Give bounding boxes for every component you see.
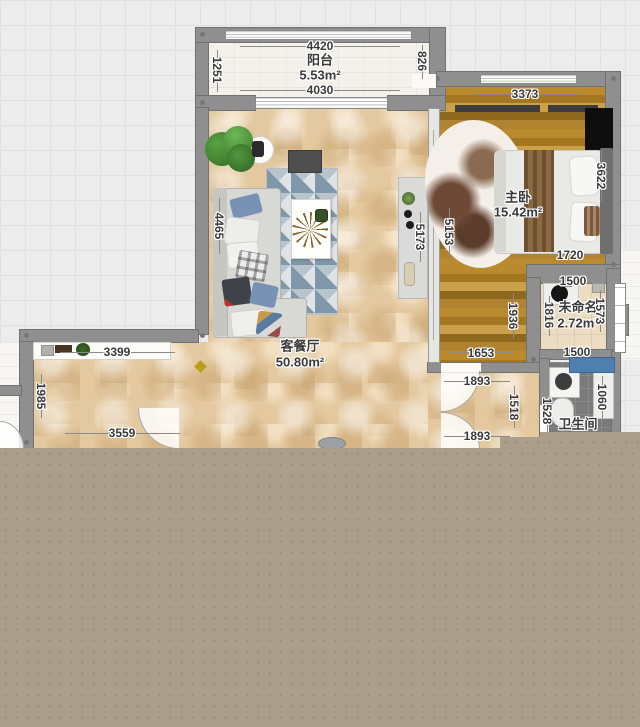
curtain[interactable] xyxy=(455,105,540,112)
tv-panel[interactable] xyxy=(585,108,613,152)
dim-hall-bottom: 1893 xyxy=(464,430,491,442)
wall-left-stub[interactable] xyxy=(0,386,21,395)
balcony-right-opening xyxy=(412,74,436,88)
dim-balcony-bottom: 4030 xyxy=(307,84,334,96)
dim-unnamed-bottom: 1500 xyxy=(564,346,591,358)
bed-cushion xyxy=(584,206,600,236)
counter-appliance xyxy=(41,345,54,356)
dim-balcony-right: 826 xyxy=(416,51,428,71)
dim-bedroom-leg-right: 1936 xyxy=(507,303,519,330)
dim-hall-top: 1893 xyxy=(464,375,491,387)
exterior-right-window[interactable] xyxy=(614,283,626,353)
bathtub-edge[interactable] xyxy=(569,357,615,373)
bottom-panel xyxy=(0,448,640,727)
dim-unnamed-right: 1573 xyxy=(594,298,606,325)
dim-bedroom-bottom: 1720 xyxy=(557,249,584,261)
area-label-living: 50.80m² xyxy=(276,356,324,369)
tv-stand[interactable] xyxy=(288,150,322,173)
dim-bedroom-leg-bottom: 1653 xyxy=(468,347,495,359)
sofa-backrest xyxy=(213,188,227,336)
balcony-sliding-door[interactable] xyxy=(255,97,388,109)
bottle xyxy=(404,262,415,286)
shelf-item xyxy=(592,283,605,293)
dim-living-left: 4465 xyxy=(213,213,225,240)
counter-plant xyxy=(76,343,90,356)
dim-extension-top: 3399 xyxy=(104,346,131,358)
dim-bathroom-left: 1528 xyxy=(541,398,553,425)
room-label-bathroom[interactable]: 卫生间 xyxy=(558,418,597,431)
speaker-device[interactable] xyxy=(252,141,264,157)
wall-joint xyxy=(611,262,616,267)
plant-leaf xyxy=(227,144,255,172)
dim-balcony-top: 4420 xyxy=(307,40,334,52)
room-label-balcony[interactable]: 阳台 xyxy=(307,54,333,67)
bowl xyxy=(404,210,412,218)
wall-extension-left[interactable] xyxy=(20,342,33,448)
dim-hall-right: 1518 xyxy=(508,394,520,421)
wall-bedroom-leg-right[interactable] xyxy=(527,278,540,363)
dim-bedroom-top: 3373 xyxy=(512,88,539,100)
floorplan-canvas: 4420 阳台 5.53m² 4030 1251 826 3373 主卧 15.… xyxy=(0,0,640,727)
dim-living-right: 5173 xyxy=(414,224,426,251)
wall-joint xyxy=(200,32,205,37)
dim-unnamed-left: 1816 xyxy=(543,302,555,329)
bedroom-window[interactable] xyxy=(480,74,577,84)
room-label-living[interactable]: 客餐厅 xyxy=(280,340,319,353)
dim-bedroom-right: 3622 xyxy=(595,163,607,190)
washer-drum xyxy=(555,373,572,390)
pillow-dark xyxy=(221,276,252,307)
small-plant xyxy=(315,209,328,222)
console-plant xyxy=(402,192,415,205)
wall-joint xyxy=(531,357,536,362)
wall-joint xyxy=(611,76,616,81)
wall-joint xyxy=(24,440,29,445)
dim-unnamed-top: 1500 xyxy=(560,275,587,287)
dim-balcony-left: 1251 xyxy=(211,57,223,84)
wall-joint xyxy=(200,100,205,105)
area-label-balcony: 5.53m² xyxy=(299,69,340,82)
room-label-bedroom[interactable]: 主卧 xyxy=(505,191,531,204)
dim-extension-left: 1985 xyxy=(35,383,47,410)
wall-joint xyxy=(24,333,29,338)
wall-extension-top[interactable] xyxy=(20,330,198,342)
wall-joint xyxy=(200,333,205,338)
dim-extension-bottom: 3559 xyxy=(109,427,136,439)
potted-plant[interactable] xyxy=(205,126,257,172)
room-label-unnamed[interactable]: 未命名 xyxy=(558,301,597,314)
area-label-bedroom: 15.42m² xyxy=(494,206,542,219)
pillow-art xyxy=(255,310,282,337)
dim-bedroom-left: 5153 xyxy=(443,219,455,246)
dim-bathroom-right: 1060 xyxy=(596,384,608,411)
